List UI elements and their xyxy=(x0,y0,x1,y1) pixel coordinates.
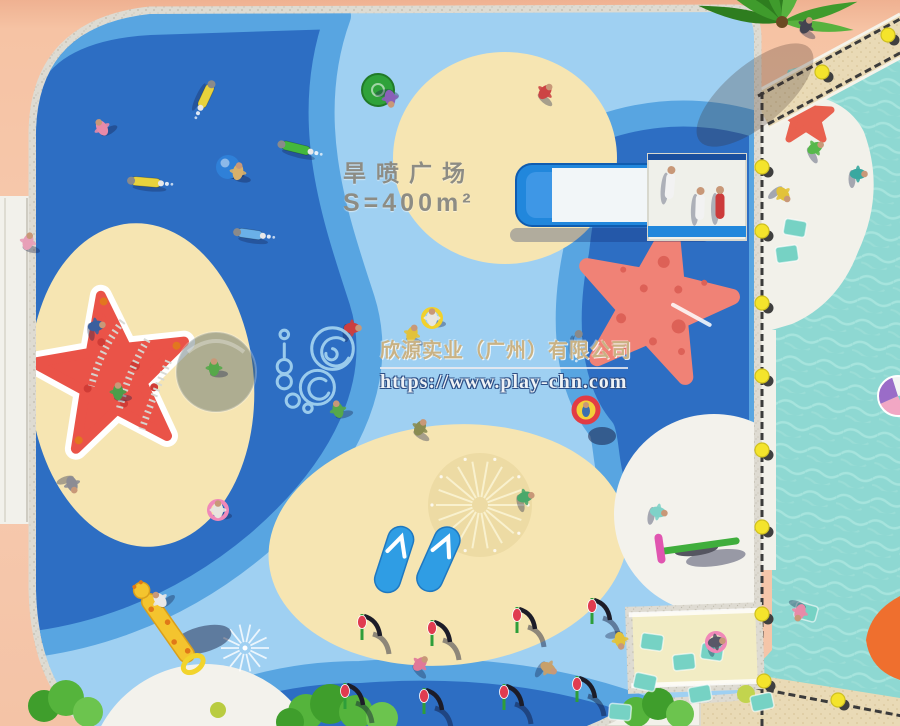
teal-mat xyxy=(783,218,807,238)
teal-mat xyxy=(640,633,664,652)
watermark-logo-icon xyxy=(272,322,376,414)
teal-mat xyxy=(608,703,631,721)
water-slide xyxy=(510,154,746,242)
teal-mat xyxy=(672,653,696,671)
watermark: 欣源实业（广州）有限公司 https://www.play-chn.com xyxy=(272,322,632,414)
plaza-area-label: S=400m² xyxy=(343,188,475,219)
teal-mat xyxy=(750,692,775,712)
watermark-divider xyxy=(380,367,628,369)
waterpark-plan-rendering: 旱喷广场 S=400m² 欣源实业（广州）有限公司 https://www.pl… xyxy=(0,0,900,726)
watermark-url: https://www.play-chn.com xyxy=(380,371,632,394)
teal-mat xyxy=(688,684,712,704)
watermark-company: 欣源实业（广州）有限公司 xyxy=(380,334,632,363)
teal-mat xyxy=(633,672,658,692)
plaza-title: 旱喷广场 xyxy=(343,160,475,188)
plaza-annotation: 旱喷广场 S=400m² xyxy=(343,160,475,219)
teal-mat xyxy=(775,245,799,264)
